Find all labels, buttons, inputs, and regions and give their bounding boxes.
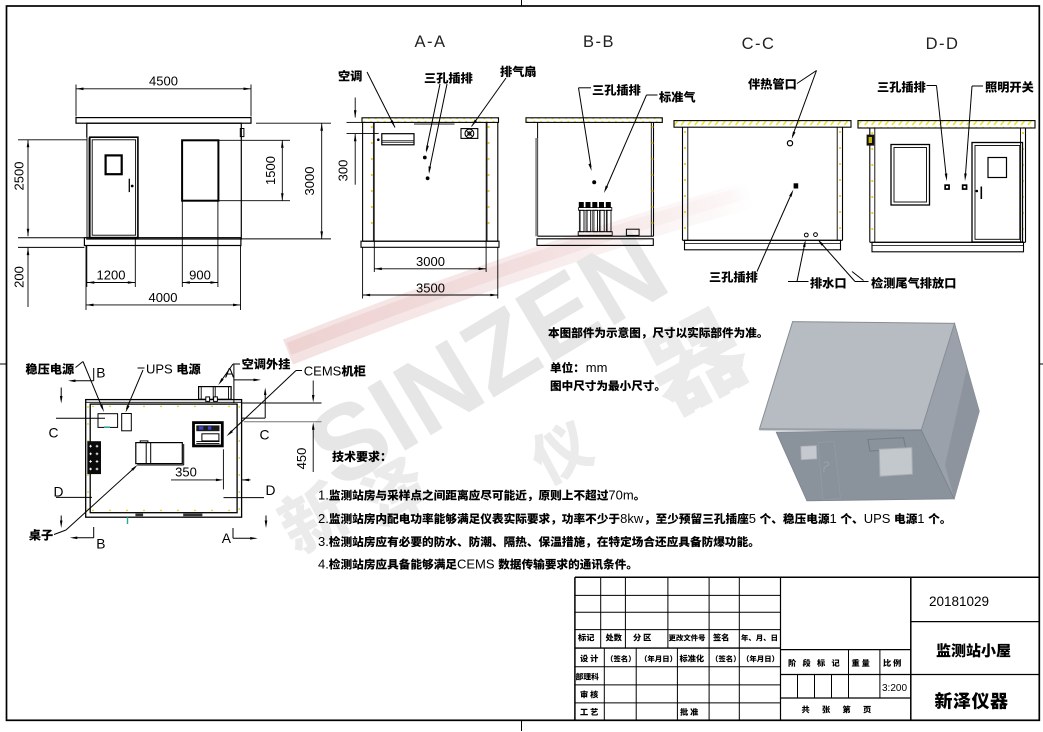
svg-text:UPS: UPS <box>146 362 173 377</box>
svg-text:200: 200 <box>12 266 27 288</box>
svg-text:3.: 3. <box>318 534 329 549</box>
svg-text:8kw: 8kw <box>620 511 644 526</box>
svg-text:C: C <box>260 427 270 442</box>
svg-text:B-B: B-B <box>583 33 615 51</box>
svg-text:1: 1 <box>917 511 924 526</box>
svg-text:B: B <box>96 536 105 551</box>
svg-text:UPS: UPS <box>864 511 891 526</box>
svg-text:4000: 4000 <box>149 290 178 305</box>
svg-text:70m: 70m <box>608 488 633 503</box>
svg-text:C-C: C-C <box>742 35 776 53</box>
svg-text:4500: 4500 <box>149 74 178 89</box>
svg-text:1500: 1500 <box>263 156 278 185</box>
svg-text:3000: 3000 <box>416 254 445 269</box>
svg-text:mm: mm <box>586 360 608 375</box>
svg-text:B: B <box>96 365 105 380</box>
svg-text:2.: 2. <box>318 511 329 526</box>
svg-text:300: 300 <box>336 160 351 182</box>
svg-text:4.: 4. <box>318 557 329 572</box>
svg-text:D-D: D-D <box>926 35 960 53</box>
svg-text:CEMS: CEMS <box>457 557 495 572</box>
svg-text:5: 5 <box>749 511 756 526</box>
svg-text:3000: 3000 <box>302 167 317 196</box>
svg-text:A: A <box>222 531 232 546</box>
svg-text:3:200: 3:200 <box>882 683 907 694</box>
svg-text:3500: 3500 <box>416 280 445 295</box>
svg-text:1.: 1. <box>318 488 329 503</box>
svg-text:A-A: A-A <box>414 33 446 51</box>
svg-text:D: D <box>54 485 64 500</box>
svg-text:1: 1 <box>830 511 837 526</box>
svg-text:450: 450 <box>294 448 309 470</box>
svg-text:2500: 2500 <box>12 162 27 191</box>
svg-text:CEMS: CEMS <box>304 364 342 379</box>
svg-text:D: D <box>266 483 276 498</box>
svg-text:1200: 1200 <box>97 267 126 282</box>
svg-text:20181029: 20181029 <box>929 594 989 609</box>
svg-text:350: 350 <box>175 464 197 479</box>
svg-text:C: C <box>49 425 59 440</box>
svg-text:900: 900 <box>189 267 211 282</box>
